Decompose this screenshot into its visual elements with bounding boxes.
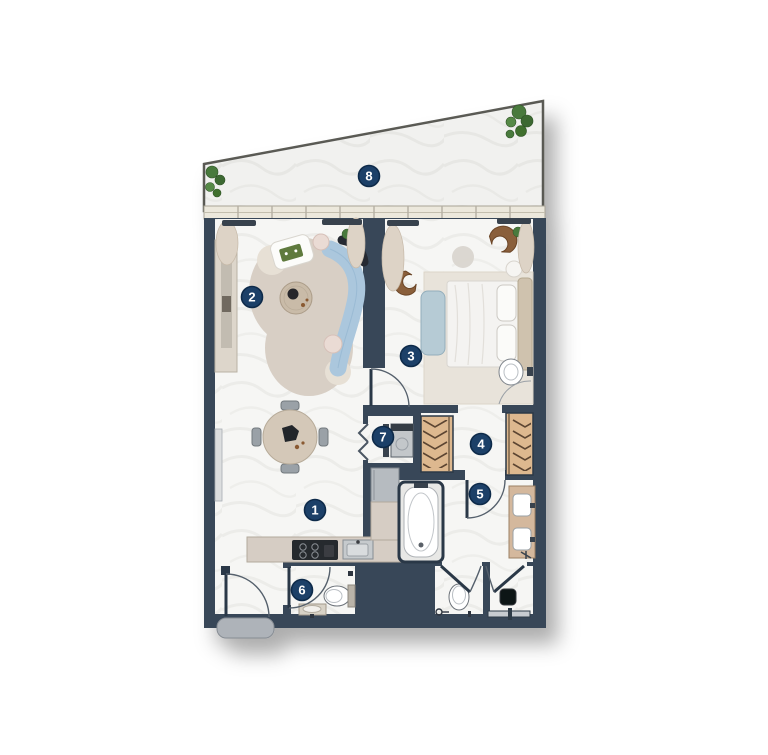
tall-counter <box>371 502 399 540</box>
svg-text:5: 5 <box>476 487 483 502</box>
floor-plan-drawing: 1 2 3 4 5 6 7 <box>0 0 768 755</box>
dining-chair-w <box>252 428 261 446</box>
side-table-top <box>313 234 329 250</box>
room-badge-2: 2 <box>242 287 263 308</box>
kitchen-sink <box>343 540 373 559</box>
curtain-drape-bedroom-w <box>382 225 404 291</box>
pillow-bottom <box>497 325 516 361</box>
room-badge-5: 5 <box>470 484 491 505</box>
svg-text:6: 6 <box>298 583 305 598</box>
room-badge-8: 8 <box>359 166 380 187</box>
bathtub <box>399 482 443 562</box>
dining-chair-e <box>319 428 328 446</box>
dining-chair-n <box>281 401 299 410</box>
room-badge-4: 4 <box>471 434 492 455</box>
headboard <box>518 278 532 370</box>
room-badge-3: 3 <box>401 346 422 367</box>
round-rug <box>452 246 474 268</box>
dining-chair-s <box>281 464 299 473</box>
curtain-drape-nw <box>216 221 238 265</box>
pillow-top <box>497 285 516 321</box>
svg-text:4: 4 <box>477 437 485 452</box>
room-badge-1: 1 <box>305 500 326 521</box>
room-badge-7: 7 <box>373 427 394 448</box>
wall-radiator <box>215 429 222 501</box>
svg-text:8: 8 <box>365 169 372 184</box>
svg-text:3: 3 <box>407 349 414 364</box>
room-badge-6: 6 <box>292 580 313 601</box>
window-band <box>204 206 545 219</box>
washing-machine <box>391 424 413 457</box>
bed-bench <box>421 291 445 355</box>
closet-left <box>421 416 453 472</box>
toilet-6 <box>324 586 350 606</box>
double-vanity <box>509 486 535 559</box>
svg-text:2: 2 <box>248 290 255 305</box>
svg-text:7: 7 <box>379 430 386 445</box>
floor-plan-canvas: 1 2 3 4 5 6 7 <box>0 0 768 755</box>
svg-text:1: 1 <box>311 503 318 518</box>
building: 1 2 3 4 5 6 7 <box>204 101 546 638</box>
cooktop <box>292 540 338 560</box>
curtain-drape-ne <box>347 218 365 268</box>
side-table-bottom <box>324 335 342 353</box>
terrace <box>204 101 543 211</box>
entry-step <box>217 618 274 638</box>
fridge <box>371 468 399 502</box>
closet-right <box>506 413 533 475</box>
toilet-tank <box>348 585 355 607</box>
coffee-table <box>280 282 312 314</box>
curtain-drape-bedroom-e <box>518 221 534 273</box>
